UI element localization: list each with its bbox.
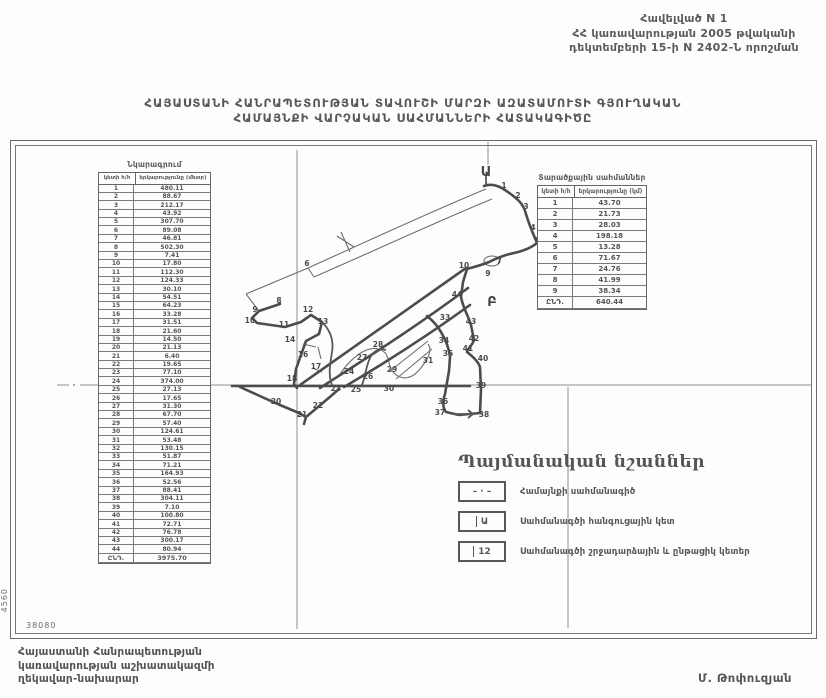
- right-table-title: Տարածքային սահմաններ: [537, 173, 647, 182]
- map-point-label: 22: [313, 401, 323, 410]
- table-row: 24374.00: [99, 377, 210, 385]
- map-point-label: 44: [452, 290, 462, 299]
- map-point-label: 10: [245, 316, 255, 325]
- map-point-label: 38: [479, 410, 489, 419]
- total-value: 3975.70: [134, 554, 210, 562]
- table-row: 328.03: [538, 220, 646, 231]
- total-label: ԸՆԴ.: [538, 297, 573, 308]
- point-number: 39: [99, 503, 134, 510]
- length-value: 21.60: [134, 327, 210, 334]
- legend-item-node-point: Ա Սահմանագծի հանգուցային կետ: [458, 511, 788, 532]
- point-number: 6: [538, 253, 573, 263]
- length-value: 72.71: [134, 520, 210, 527]
- table-row: 143.70: [538, 198, 646, 209]
- length-value: 31.51: [134, 319, 210, 326]
- table-row: 38304.11: [99, 495, 210, 503]
- length-value: 124.61: [134, 428, 210, 435]
- point-number: 18: [99, 327, 134, 334]
- corridor-line-top: [308, 189, 486, 268]
- map-point-label: 36: [438, 397, 448, 406]
- point-lengths-table: Նկարագրում կետի հ/հ երկարությունը (մետր)…: [98, 160, 211, 564]
- length-value: 53.48: [134, 436, 210, 443]
- point-number: 21: [99, 352, 134, 359]
- table-row: 746.81: [99, 235, 210, 243]
- point-number: 41: [99, 520, 134, 527]
- length-value: 41.99: [573, 275, 646, 285]
- point-number: 11: [99, 268, 134, 275]
- point-number: 16: [99, 310, 134, 317]
- table-row: 938.34: [538, 286, 646, 297]
- table-row: 32130.15: [99, 445, 210, 453]
- table-row: 2377.10: [99, 369, 210, 377]
- point-number: 36: [99, 478, 134, 485]
- table-row: 4172.71: [99, 520, 210, 528]
- table-row: 97.41: [99, 252, 210, 260]
- right-table: կետի հ/հ երկարությունը (կմ) 143.70221.73…: [537, 185, 647, 310]
- map-point-label: 17: [311, 362, 321, 371]
- annex-map-document: Հավելված N 1 ՀՀ կառավարության 2005 թվակա…: [0, 0, 826, 698]
- turning-point-symbol: 12: [458, 541, 506, 562]
- map-point-label: 39: [476, 381, 486, 390]
- left-table-col2-header: երկարությունը (մետր): [136, 173, 210, 184]
- map-point-label: 41: [463, 344, 473, 353]
- map-point-label: 4: [530, 223, 535, 232]
- table-row: 3212.17: [99, 201, 210, 209]
- length-value: 30.10: [134, 285, 210, 292]
- length-value: 212.17: [134, 201, 210, 208]
- length-value: 46.81: [134, 235, 210, 242]
- total-value: 640.44: [573, 297, 646, 308]
- map-point-label: 37: [435, 408, 445, 417]
- length-value: 89.08: [134, 226, 210, 233]
- length-value: 71.67: [573, 253, 646, 263]
- symbol-tick: [473, 546, 474, 557]
- boundary-inner-curve-1: [322, 322, 333, 385]
- point38-arrow: [452, 410, 473, 418]
- length-value: 17.65: [134, 394, 210, 401]
- table-row: 1454.51: [99, 294, 210, 302]
- point-number: 27: [99, 403, 134, 410]
- length-value: 64.23: [134, 302, 210, 309]
- table-row: 35164.93: [99, 470, 210, 478]
- point-number: 8: [99, 243, 134, 250]
- map-point-label: 27: [357, 353, 367, 362]
- point-number: 15: [99, 302, 134, 309]
- node-point-glyph: Ա: [481, 517, 488, 527]
- table-row: 40100.80: [99, 512, 210, 520]
- signatory-title-block: Հայաստանի Հանրապետության կառավարության ա…: [18, 646, 215, 687]
- signatory-line3: ղեկավար-նախարար: [18, 673, 215, 687]
- map-point-label: 25: [351, 385, 361, 394]
- signatory-line1: Հայաստանի Հանրապետության: [18, 646, 215, 660]
- length-value: 80.94: [134, 545, 210, 552]
- length-value: 76.78: [134, 529, 210, 536]
- map-point-label: 10: [459, 261, 469, 270]
- point-number: 5: [538, 242, 573, 252]
- point-number: 19: [99, 336, 134, 343]
- right-table-col2-header: երկարությունը (կմ): [575, 186, 646, 197]
- point-number: 13: [99, 285, 134, 292]
- point-number: 8: [538, 275, 573, 285]
- table-row: 1633.28: [99, 310, 210, 318]
- symbol-tick: [476, 516, 477, 527]
- map-point-label: 26: [363, 372, 373, 381]
- legend-item-label: Սահմանագծի շրջադարձային և ընթացիկ կետեր: [506, 547, 750, 557]
- table-row: 4276.78: [99, 529, 210, 537]
- point-number: 22: [99, 361, 134, 368]
- point-number: 37: [99, 487, 134, 494]
- length-value: 57.40: [134, 419, 210, 426]
- length-value: 13.28: [573, 242, 646, 252]
- table-row: 689.08: [99, 226, 210, 234]
- table-row: 43300.17: [99, 537, 210, 545]
- map-point-label: 34: [439, 336, 449, 345]
- legend-title: Պայմանական նշաններ: [458, 452, 788, 472]
- legend-item-boundary: – · – Համայնքի սահմանագիծ: [458, 481, 788, 502]
- table-row: 3652.56: [99, 478, 210, 486]
- map-point-label: 28: [373, 340, 383, 349]
- length-value: 43.92: [134, 210, 210, 217]
- table-row: 3788.41: [99, 487, 210, 495]
- table-row: 2527.13: [99, 386, 210, 394]
- table-row: 2867.70: [99, 411, 210, 419]
- map-point-label: 30: [384, 384, 394, 393]
- table-row: 2731.30: [99, 403, 210, 411]
- point-number: 34: [99, 461, 134, 468]
- length-value: 71.21: [134, 461, 210, 468]
- length-value: 33.28: [134, 310, 210, 317]
- length-value: 300.17: [134, 537, 210, 544]
- length-value: 67.70: [134, 411, 210, 418]
- right-table-header: կետի հ/հ երկարությունը (կմ): [538, 186, 646, 198]
- point-number: 26: [99, 394, 134, 401]
- legend-item-turning-point: 12 Սահմանագծի շրջադարձային և ընթացիկ կետ…: [458, 541, 788, 562]
- length-value: 502.30: [134, 243, 210, 250]
- left-table: կետի հ/հ երկարությունը (մետր) 1480.11288…: [98, 172, 211, 564]
- length-value: 43.70: [573, 198, 646, 208]
- map-point-label: 43: [466, 317, 476, 326]
- left-table-header: կետի հ/հ երկարությունը (մետր): [99, 173, 210, 185]
- legend-item-label: Սահմանագծի հանգուցային կետ: [506, 517, 675, 527]
- point-number: 33: [99, 453, 134, 460]
- map-point-label: 2: [515, 191, 520, 200]
- map-point-label: 33: [440, 313, 450, 322]
- length-value: 6.40: [134, 352, 210, 359]
- map-point-label: 12: [303, 305, 313, 314]
- point-number: 31: [99, 436, 134, 443]
- map-point-label: 21: [297, 410, 307, 419]
- length-value: 112.30: [134, 268, 210, 275]
- map-point-label: 16: [298, 350, 308, 359]
- length-value: 88.41: [134, 487, 210, 494]
- right-table-rows: 143.70221.73328.034198.18513.28671.67724…: [538, 198, 646, 309]
- table-row: 216.40: [99, 352, 210, 360]
- map-point-label: 9: [485, 269, 490, 278]
- point-number: 3: [99, 201, 134, 208]
- length-value: 307.70: [134, 218, 210, 225]
- table-row: 1480.11: [99, 185, 210, 193]
- map-grid-dot: [73, 384, 75, 386]
- map-point-label: 35: [443, 349, 453, 358]
- length-value: 28.03: [573, 220, 646, 230]
- left-table-col1-header: կետի հ/հ: [99, 173, 136, 184]
- table-row: 671.67: [538, 253, 646, 264]
- table-row: 3153.48: [99, 436, 210, 444]
- table-row: 2957.40: [99, 419, 210, 427]
- boundary-south-triangle: [240, 387, 339, 424]
- segment-lengths-table: Տարածքային սահմաններ կետի հ/հ երկարությո…: [537, 173, 647, 310]
- table-row: 1017.80: [99, 260, 210, 268]
- map-point-label: 29: [387, 365, 397, 374]
- table-row: 513.28: [538, 242, 646, 253]
- table-row: 2617.65: [99, 394, 210, 402]
- map-point-label: 14: [285, 335, 295, 344]
- map-point-label: 6: [304, 259, 309, 268]
- length-value: 7.41: [134, 252, 210, 259]
- point-number: 5: [99, 218, 134, 225]
- table-row: 1330.10: [99, 285, 210, 293]
- point-number: 40: [99, 512, 134, 519]
- node-label-a: Ա: [481, 165, 492, 180]
- left-table-rows: 1480.11288.673212.17443.925307.70689.087…: [99, 185, 210, 564]
- length-value: 19.65: [134, 361, 210, 368]
- turning-point-glyph: 12: [478, 547, 491, 557]
- table-row: 1731.51: [99, 319, 210, 327]
- point-number: 43: [99, 537, 134, 544]
- length-value: 124.33: [134, 277, 210, 284]
- length-value: 21.73: [573, 209, 646, 219]
- point-number: 2: [538, 209, 573, 219]
- point-number: 38: [99, 495, 134, 502]
- point-number: 9: [99, 252, 134, 259]
- point-number: 32: [99, 445, 134, 452]
- length-value: 77.10: [134, 369, 210, 376]
- length-value: 100.80: [134, 512, 210, 519]
- table-row: 1564.23: [99, 302, 210, 310]
- length-value: 17.80: [134, 260, 210, 267]
- table-total-row: ԸՆԴ.3975.70: [99, 554, 210, 563]
- map-point-label: 23: [331, 384, 341, 393]
- map-point-label: 7: [496, 257, 501, 266]
- table-row: 12124.33: [99, 277, 210, 285]
- node-label-b: Բ: [487, 295, 496, 310]
- table-row: 1914.50: [99, 336, 210, 344]
- table-row: 443.92: [99, 210, 210, 218]
- map-point-label: 1: [501, 181, 506, 190]
- length-value: 164.93: [134, 470, 210, 477]
- length-value: 14.50: [134, 336, 210, 343]
- point-number: 1: [99, 185, 134, 192]
- length-value: 198.18: [573, 231, 646, 241]
- point-number: 42: [99, 529, 134, 536]
- point-number: 35: [99, 470, 134, 477]
- point-number: 7: [99, 235, 134, 242]
- table-row: 724.76: [538, 264, 646, 275]
- point-number: 17: [99, 319, 134, 326]
- corridor-hatch: [337, 232, 354, 252]
- map-point-label: 40: [478, 354, 488, 363]
- signatory-line2: կառավարության աշխատակազմի: [18, 660, 215, 674]
- table-row: 397.10: [99, 503, 210, 511]
- table-row: 30124.61: [99, 428, 210, 436]
- boundary-line-glyph: – · –: [473, 487, 492, 497]
- length-value: 480.11: [134, 185, 210, 192]
- legend-item-label: Համայնքի սահմանագիծ: [506, 487, 635, 497]
- length-value: 51.87: [134, 453, 210, 460]
- corner-coordinate-horizontal: 38080: [26, 621, 56, 630]
- length-value: 374.00: [134, 377, 210, 384]
- right-table-col1-header: կետի հ/հ: [538, 186, 575, 197]
- boundary-line-symbol: – · –: [458, 481, 506, 502]
- map-point-label: 9: [252, 305, 257, 314]
- point-number: 4: [99, 210, 134, 217]
- table-total-row: ԸՆԴ.640.44: [538, 297, 646, 309]
- length-value: 54.51: [134, 294, 210, 301]
- table-row: 841.99: [538, 275, 646, 286]
- point-number: 12: [99, 277, 134, 284]
- map-point-label: 31: [423, 356, 433, 365]
- table-row: 288.67: [99, 193, 210, 201]
- table-row: 1821.60: [99, 327, 210, 335]
- table-row: 5307.70: [99, 218, 210, 226]
- length-value: 7.10: [134, 503, 210, 510]
- map-point-label: 3: [523, 202, 528, 211]
- table-row: 3351.87: [99, 453, 210, 461]
- table-row: 3471.21: [99, 461, 210, 469]
- point-number: 9: [538, 286, 573, 296]
- point-number: 23: [99, 369, 134, 376]
- table-row: 2021.13: [99, 344, 210, 352]
- length-value: 31.30: [134, 403, 210, 410]
- map-point-label: 18: [287, 374, 297, 383]
- point-number: 44: [99, 545, 134, 552]
- length-value: 24.76: [573, 264, 646, 274]
- point-number: 14: [99, 294, 134, 301]
- map-point-label: 24: [344, 367, 354, 376]
- point-number: 3: [538, 220, 573, 230]
- point-number: 24: [99, 377, 134, 384]
- point-number: 30: [99, 428, 134, 435]
- map-point-label: 11: [279, 320, 289, 329]
- point-number: 10: [99, 260, 134, 267]
- point-number: 29: [99, 419, 134, 426]
- point-number: 7: [538, 264, 573, 274]
- point-number: 2: [99, 193, 134, 200]
- length-value: 21.13: [134, 344, 210, 351]
- left-table-title: Նկարագրում: [98, 160, 211, 169]
- point-number: 4: [538, 231, 573, 241]
- table-row: 8502.30: [99, 243, 210, 251]
- map-point-label: 20: [271, 397, 281, 406]
- boundary-outline-east: [461, 185, 537, 413]
- map-point-label: 42: [469, 334, 479, 343]
- point-number: 1: [538, 198, 573, 208]
- table-row: 2219.65: [99, 361, 210, 369]
- node-point-symbol: Ա: [458, 511, 506, 532]
- map-point-label: 13: [318, 317, 328, 326]
- map-point-label: 8: [276, 296, 281, 305]
- table-row: 11112.30: [99, 268, 210, 276]
- length-value: 27.13: [134, 386, 210, 393]
- point-number: 20: [99, 344, 134, 351]
- point-number: 25: [99, 386, 134, 393]
- table-row: 4480.94: [99, 545, 210, 553]
- length-value: 304.11: [134, 495, 210, 502]
- length-value: 88.67: [134, 193, 210, 200]
- length-value: 38.34: [573, 286, 646, 296]
- table-row: 221.73: [538, 209, 646, 220]
- signature-name: Մ. Թոփուզյան: [698, 671, 792, 685]
- table-row: 4198.18: [538, 231, 646, 242]
- corner-coordinate-vertical: 4560: [0, 588, 9, 612]
- legend: Պայմանական նշաններ – · – Համայնքի սահման…: [458, 452, 788, 562]
- length-value: 130.15: [134, 445, 210, 452]
- point-number: 6: [99, 226, 134, 233]
- point-number: 28: [99, 411, 134, 418]
- length-value: 52.56: [134, 478, 210, 485]
- total-label: ԸՆԴ.: [99, 554, 134, 562]
